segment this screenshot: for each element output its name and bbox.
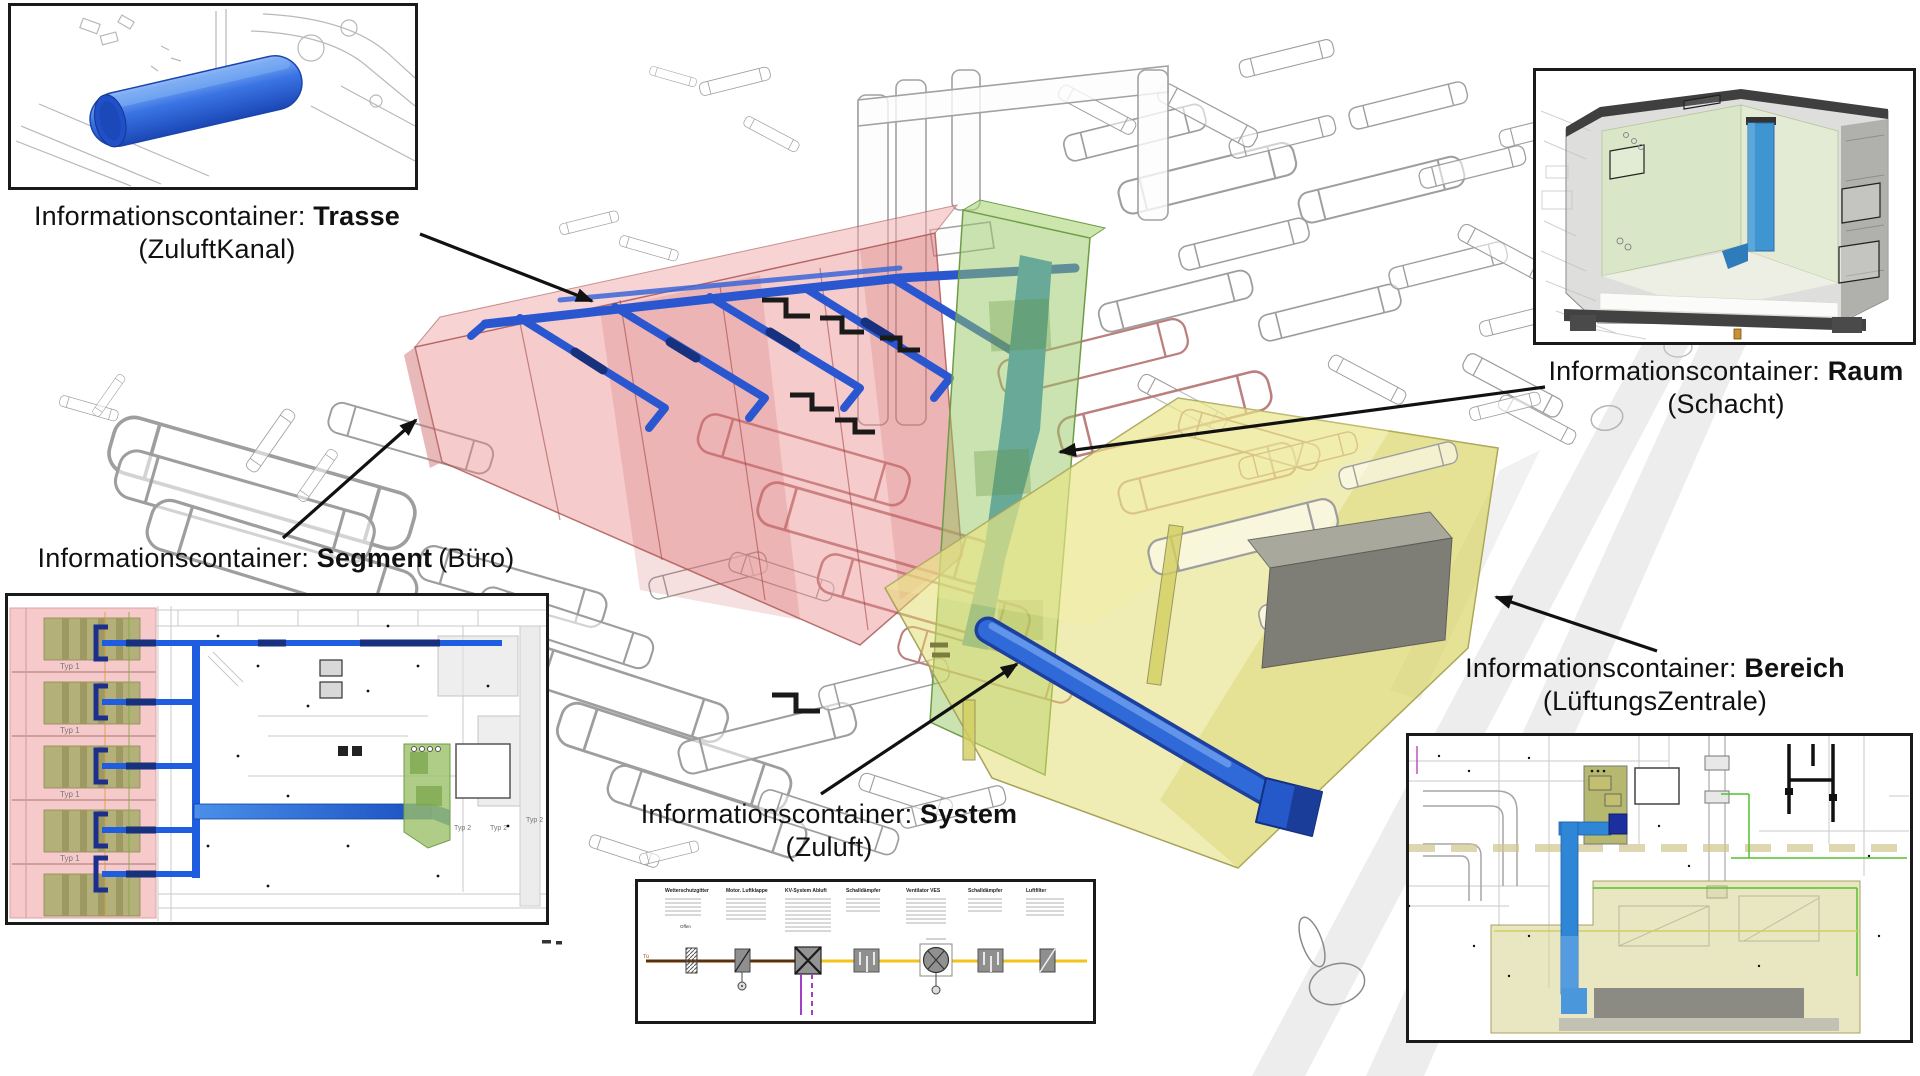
svg-text:Ventilator VES: Ventilator VES [906,888,941,894]
callout-prefix: Informationscontainer: [1548,356,1827,386]
arrow-trasse [420,234,592,301]
component-headers: Wetterschutzgitter Motor. Luftklappe KV-… [665,888,1046,894]
svg-text:Typ 2: Typ 2 [490,825,507,832]
svg-text:Motor. Luftklappe: Motor. Luftklappe [726,888,768,894]
inset-raum-schacht [1533,68,1916,345]
room-3d-view [1564,89,1888,339]
callout-qualifier: (Schacht) [1526,388,1920,421]
ahu-plan-dark [1594,988,1804,1018]
svg-text:Schalldämpfer: Schalldämpfer [968,888,1003,894]
callout-prefix: Informationscontainer: [1465,653,1744,683]
callout-trasse: Informationscontainer: Trasse (ZuluftKan… [17,200,417,266]
callout-bereich: Informationscontainer: Bereich (Lüftungs… [1440,652,1870,718]
inset-segment-floorplan: Typ 1 Typ 1 Typ 1 Typ 1 [5,593,549,925]
callout-prefix: Informationscontainer: [38,543,317,573]
callout-prefix: Informationscontainer: [34,201,313,231]
callout-type: Segment [317,543,432,573]
callout-qualifier: (ZuluftKanal) [17,233,417,266]
blue-duct-cylinder [85,50,308,151]
plan-green-zone [404,744,510,848]
main-supply-duct [194,804,432,819]
bim-informationscontainer-figure: Typ 1 Typ 1 Typ 1 Typ 1 [0,0,1920,1076]
zentrale-yellow-zone [1491,881,1860,1033]
callout-qualifier: (Zuluft) [629,831,1029,864]
svg-text:Typ 2: Typ 2 [454,825,471,832]
callout-type: System [920,799,1017,829]
svg-text:Typ 1: Typ 1 [60,726,80,735]
callout-type: Trasse [313,201,400,231]
schematic-components [686,937,1055,994]
callout-system: Informationscontainer: System (Zuluft) [629,798,1029,864]
spec-tables [665,896,1064,934]
inset-trasse-zuluftkanal [8,3,418,190]
svg-text:Typ 1: Typ 1 [60,662,80,671]
inset-system-schematic: Wetterschutzgitter Motor. Luftklappe KV-… [635,879,1096,1024]
inlet-label: Tü [643,954,649,960]
exhaust-line-brown [646,960,795,963]
svg-text:Typ 1: Typ 1 [60,854,80,863]
svg-text:Luftfilter: Luftfilter [1026,888,1046,894]
svg-text:Schalldämpfer: Schalldämpfer [846,888,881,894]
callout-raum: Informationscontainer: Raum (Schacht) [1526,355,1920,421]
callout-prefix: Informationscontainer: [641,799,920,829]
svg-text:KV-System Abluft: KV-System Abluft [785,888,827,894]
valve-note: Offen [680,924,691,929]
svg-text:Wetterschutzgitter: Wetterschutzgitter [665,888,709,894]
callout-type: Bereich [1744,653,1844,683]
inset-bereich-floorplan [1406,733,1913,1043]
control-lines-purple [801,974,812,1015]
callout-segment: Informationscontainer: Segment(Büro) [26,542,526,575]
callout-qualifier: (Büro) [438,543,514,573]
callout-qualifier: (LüftungsZentrale) [1440,685,1870,718]
svg-text:Typ 2: Typ 2 [526,817,543,824]
callout-type: Raum [1828,356,1904,386]
svg-text:Typ 1: Typ 1 [60,790,80,799]
